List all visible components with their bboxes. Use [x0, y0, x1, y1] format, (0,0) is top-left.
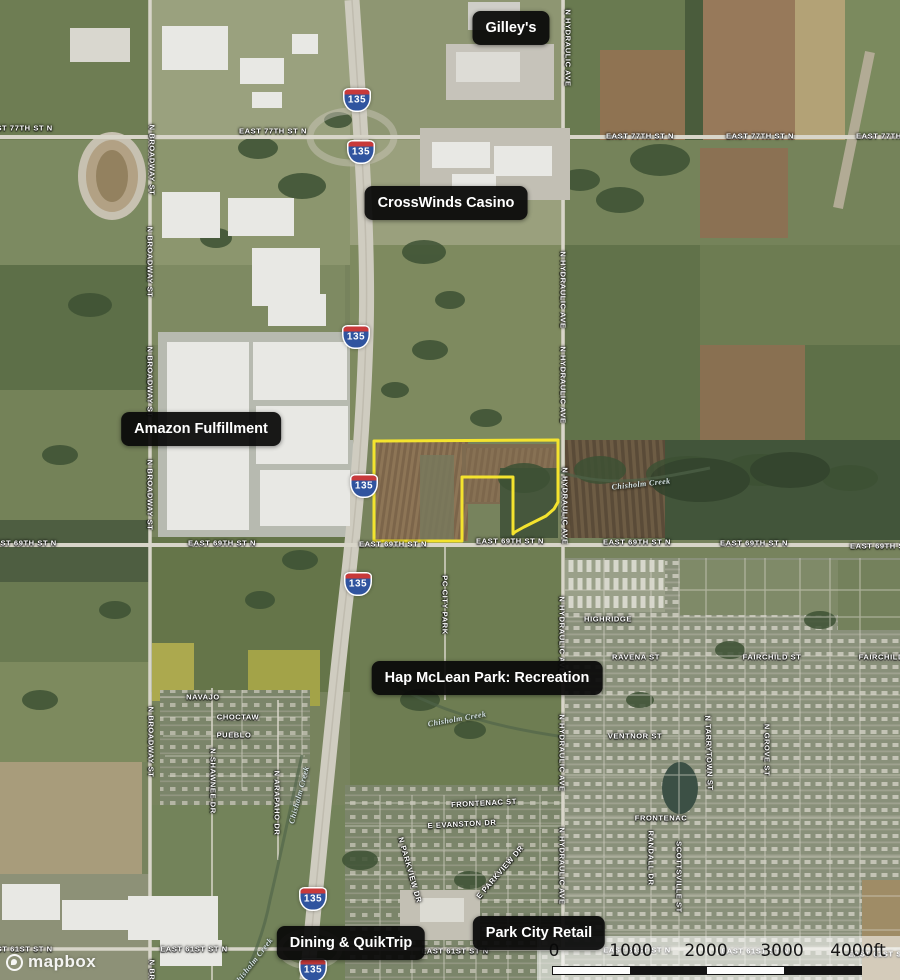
shield-number: 135 — [352, 481, 377, 492]
street-label: N HYDRAULIC AVE — [558, 827, 567, 904]
street-label: N HYDRAULIC AVE — [558, 714, 567, 791]
street-label: N HYDRAULIC AVE — [559, 346, 568, 423]
poi-label-amazon-fulfillment: Amazon Fulfillment — [121, 412, 281, 446]
scale-tick-2000: 2000 — [684, 941, 727, 961]
scale-tick-1000: 1000 — [609, 941, 652, 961]
scale-tick-4000ft: 4000ft — [830, 941, 886, 961]
poi-label-hap-mclean-park: Hap McLean Park: Recreation — [372, 661, 603, 695]
shield-number: 135 — [344, 332, 369, 343]
street-label: EAST 69TH ST N — [850, 542, 900, 551]
satellite-imagery — [0, 0, 900, 980]
scale-segment — [553, 967, 630, 974]
shield-number: 135 — [346, 579, 371, 590]
mapbox-logo-icon — [6, 954, 23, 971]
street-label: HIGHRIDGE — [584, 615, 632, 624]
street-label: RANDALL DR — [647, 830, 656, 885]
scale-segment — [630, 967, 707, 974]
street-label: WEST 69TH ST N — [0, 539, 57, 548]
street-label: CHOCTAW — [217, 713, 259, 722]
street-label: EAST 69TH ST N — [603, 538, 671, 547]
street-label: EAST 77TH ST N — [239, 127, 307, 136]
poi-label-crosswinds-casino: CrossWinds Casino — [365, 186, 528, 220]
street-label: FAIRCHILD ST — [743, 653, 802, 662]
shield-number: 135 — [349, 147, 374, 158]
street-label: VENTNOR ST — [608, 732, 662, 741]
street-label: N BROADWAY ST — [148, 960, 157, 980]
scale-tick-3000: 3000 — [760, 941, 803, 961]
street-label: FRONTENAC — [635, 814, 687, 823]
street-label: N SHAWNEE DR — [209, 748, 218, 814]
street-label: N GROVE ST — [763, 724, 772, 776]
street-label: N BROADWAY ST — [146, 347, 155, 418]
street-label: PUEBLO — [217, 731, 252, 740]
racetrack — [78, 132, 146, 220]
scale-segment — [707, 967, 784, 974]
mapbox-attribution[interactable]: mapbox — [6, 952, 96, 972]
street-label: SCOTTSVILLE ST — [675, 841, 684, 913]
street-label: RAVENA ST — [612, 653, 660, 662]
poi-label-park-city-retail: Park City Retail — [473, 916, 605, 950]
street-label: EAST 77TH ST N — [856, 132, 900, 141]
street-label: EAST 69TH ST N — [720, 539, 788, 548]
shield-number: 135 — [301, 894, 326, 905]
street-label: N ARAPAHO DR — [273, 771, 282, 836]
poi-label-dining-quiktrip: Dining & QuikTrip — [277, 926, 425, 960]
street-label: WEST 77TH ST N — [0, 124, 53, 133]
street-label: N HYDRAULIC AVE — [564, 9, 573, 86]
scale-segment — [784, 967, 861, 974]
street-label: N BROADWAY ST — [148, 125, 157, 196]
street-label: N BROADWAY ST — [146, 227, 155, 298]
shield-number: 135 — [345, 95, 370, 106]
street-label: EAST 69TH ST N — [476, 537, 544, 546]
street-label: NAVAJO — [186, 693, 220, 702]
street-label: EAST 69TH ST N — [359, 540, 427, 549]
street-label: EAST 61ST ST N — [160, 945, 228, 954]
street-label: FAIRCHILD ST — [859, 653, 900, 662]
scale-bar-track — [552, 966, 862, 975]
street-label: PC CITY PARK — [441, 575, 450, 634]
mapbox-logo-text: mapbox — [28, 952, 96, 972]
street-label: N BROADWAY ST — [146, 460, 155, 531]
street-label: EAST 77TH ST N — [606, 132, 674, 141]
poi-label-gilleys: Gilley's — [472, 11, 549, 45]
street-label: N HYDRAULIC AVE — [561, 467, 570, 544]
interstate-135-shield-icon: 135 — [301, 960, 326, 980]
shield-number: 135 — [301, 965, 326, 976]
street-label: N HYDRAULIC AVE — [559, 251, 568, 328]
street-label: EAST 69TH ST N — [188, 539, 256, 548]
map-canvas[interactable]: 0 1000 2000 3000 4000ft mapbox WEST 77TH… — [0, 0, 900, 980]
street-label: N BROADWAY ST — [147, 707, 156, 778]
street-label: EAST 77TH ST N — [726, 132, 794, 141]
